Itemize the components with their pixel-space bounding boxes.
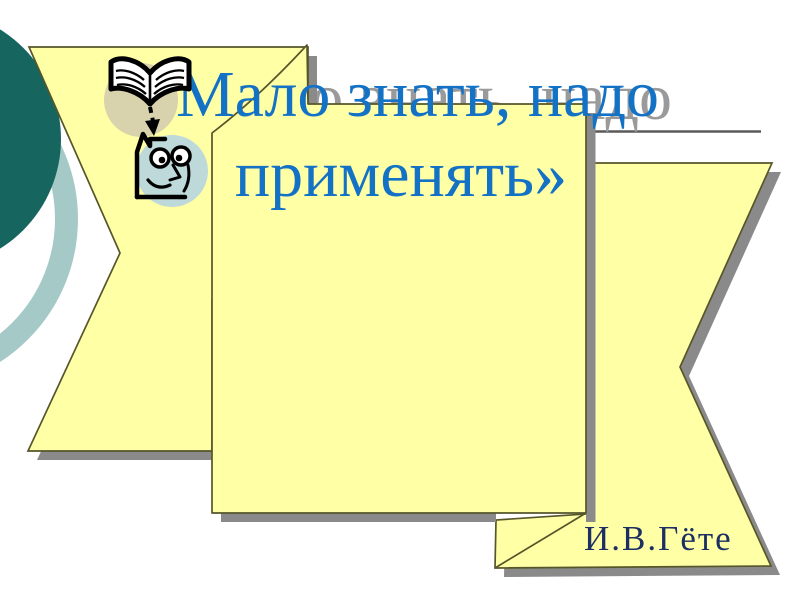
reading-clipart	[0, 0, 800, 600]
reader-face-icon	[136, 134, 208, 207]
attribution-text: И.В.Гёте	[584, 519, 733, 559]
presentation-slide: «Мало знать, надо применять» «Мало знать…	[0, 0, 800, 600]
open-book-icon	[104, 59, 189, 137]
